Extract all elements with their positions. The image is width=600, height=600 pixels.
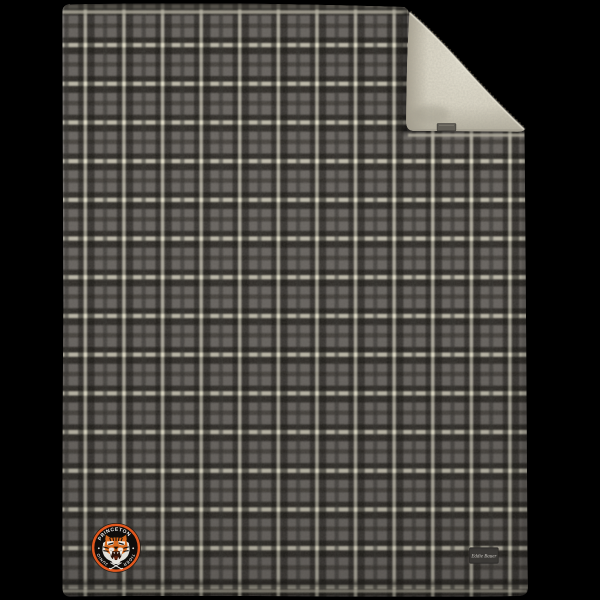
svg-text:Eddie Bauer: Eddie Bauer bbox=[470, 554, 496, 559]
